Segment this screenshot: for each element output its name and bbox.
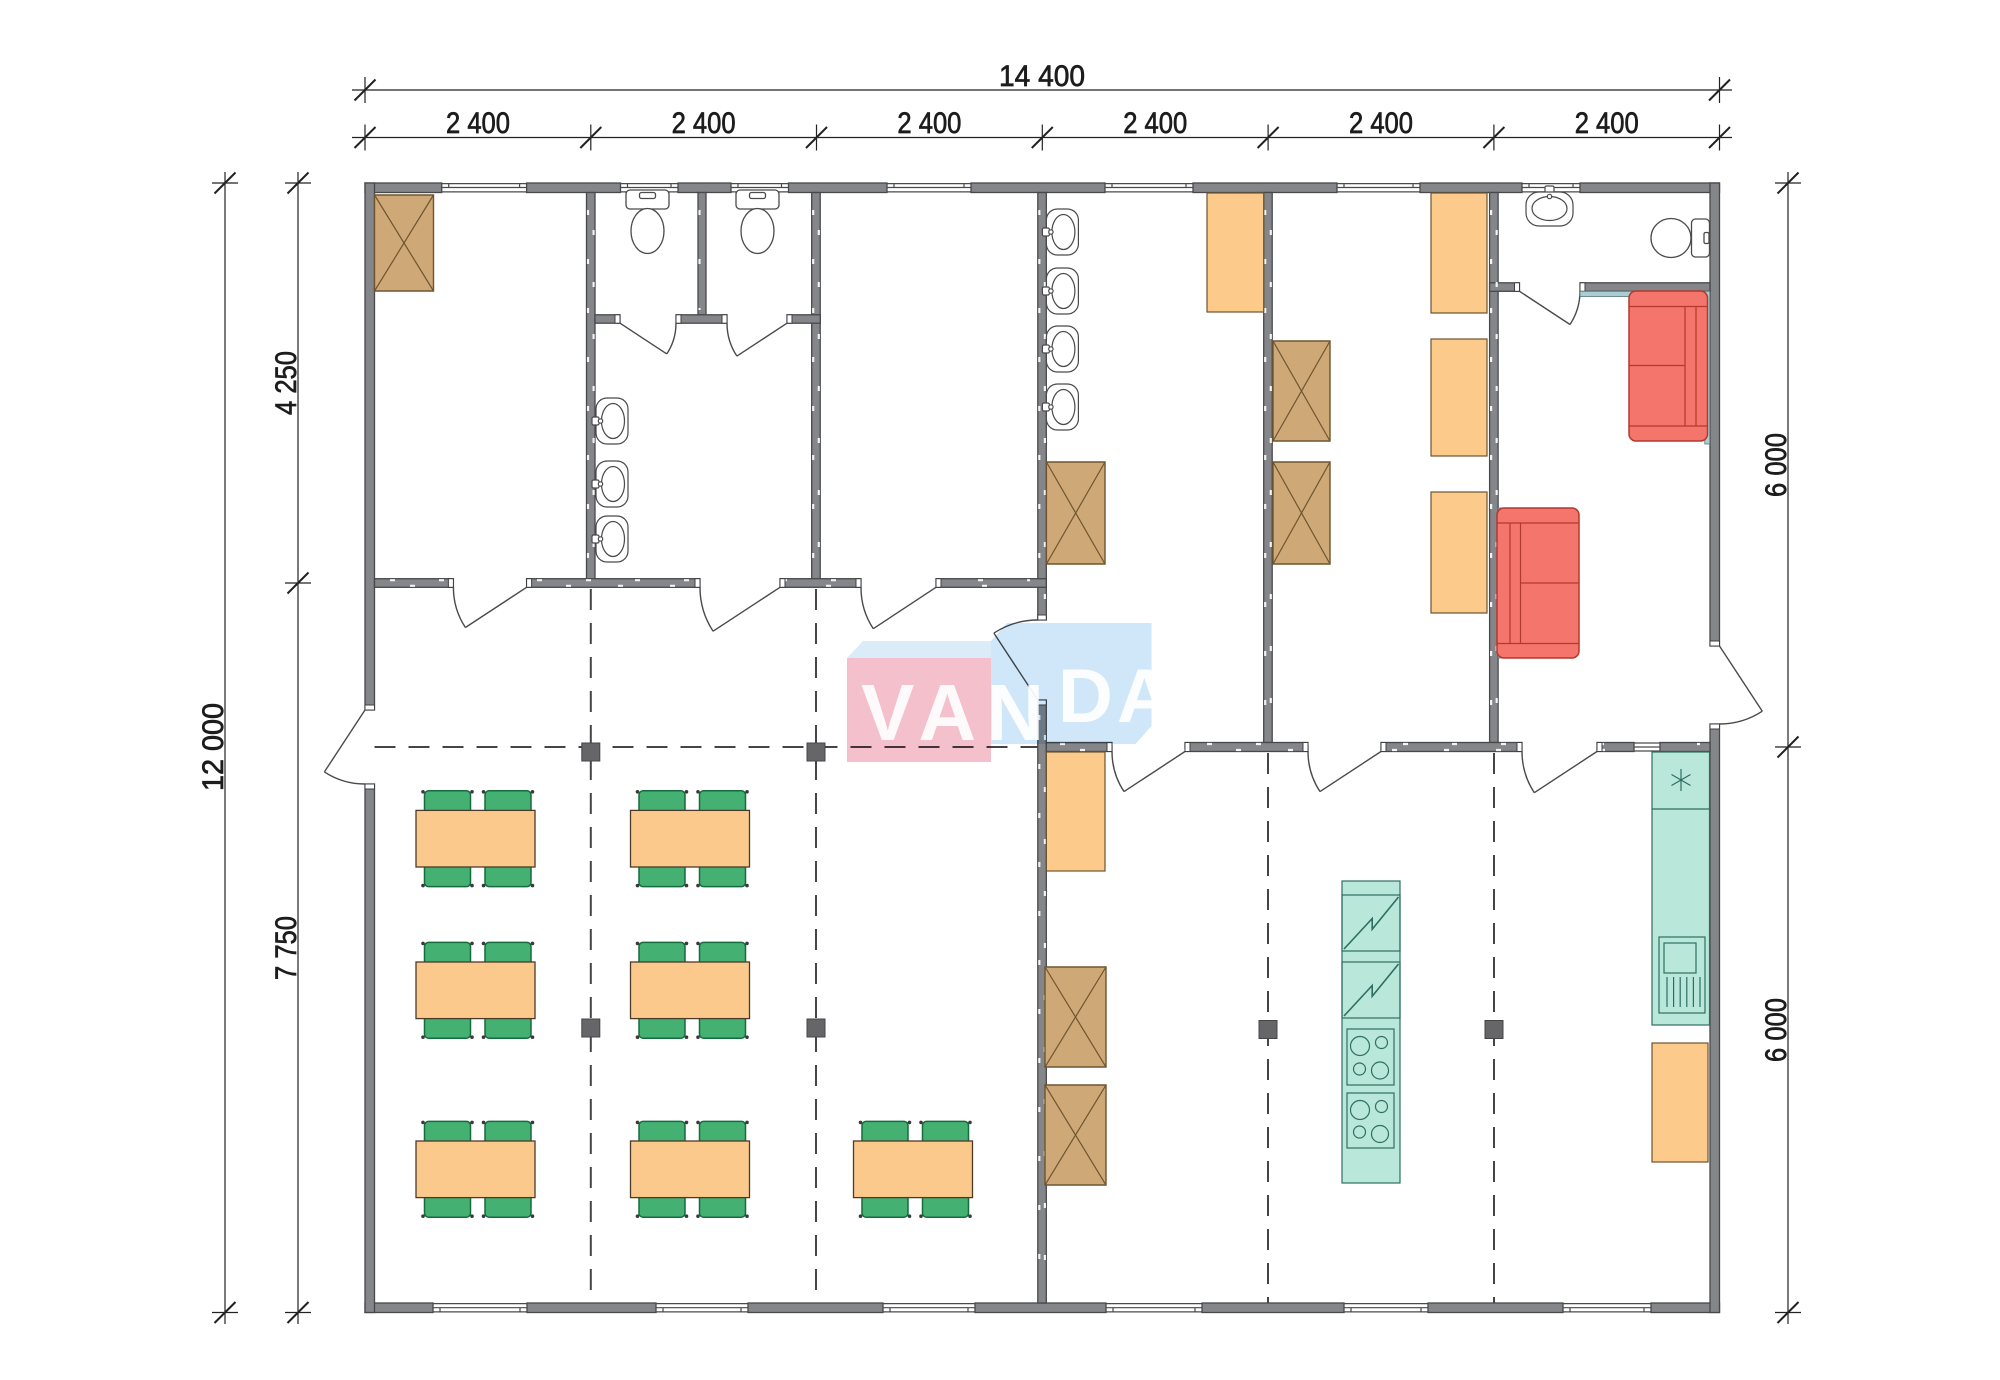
svg-text:7 750: 7 750	[270, 916, 303, 980]
svg-text:2 400: 2 400	[446, 107, 510, 140]
svg-text:2 400: 2 400	[1349, 107, 1413, 140]
svg-text:DA: DA	[1058, 654, 1176, 739]
svg-text:6 000: 6 000	[1760, 433, 1793, 497]
svg-text:6 000: 6 000	[1760, 998, 1793, 1062]
svg-text:VAN: VAN	[861, 668, 1054, 757]
svg-text:12 000: 12 000	[197, 703, 230, 791]
svg-text:2 400: 2 400	[897, 107, 961, 140]
svg-text:14 400: 14 400	[999, 60, 1085, 93]
svg-text:2 400: 2 400	[672, 107, 736, 140]
svg-text:2 400: 2 400	[1123, 107, 1187, 140]
svg-text:4 250: 4 250	[270, 351, 303, 415]
svg-text:2 400: 2 400	[1575, 107, 1639, 140]
